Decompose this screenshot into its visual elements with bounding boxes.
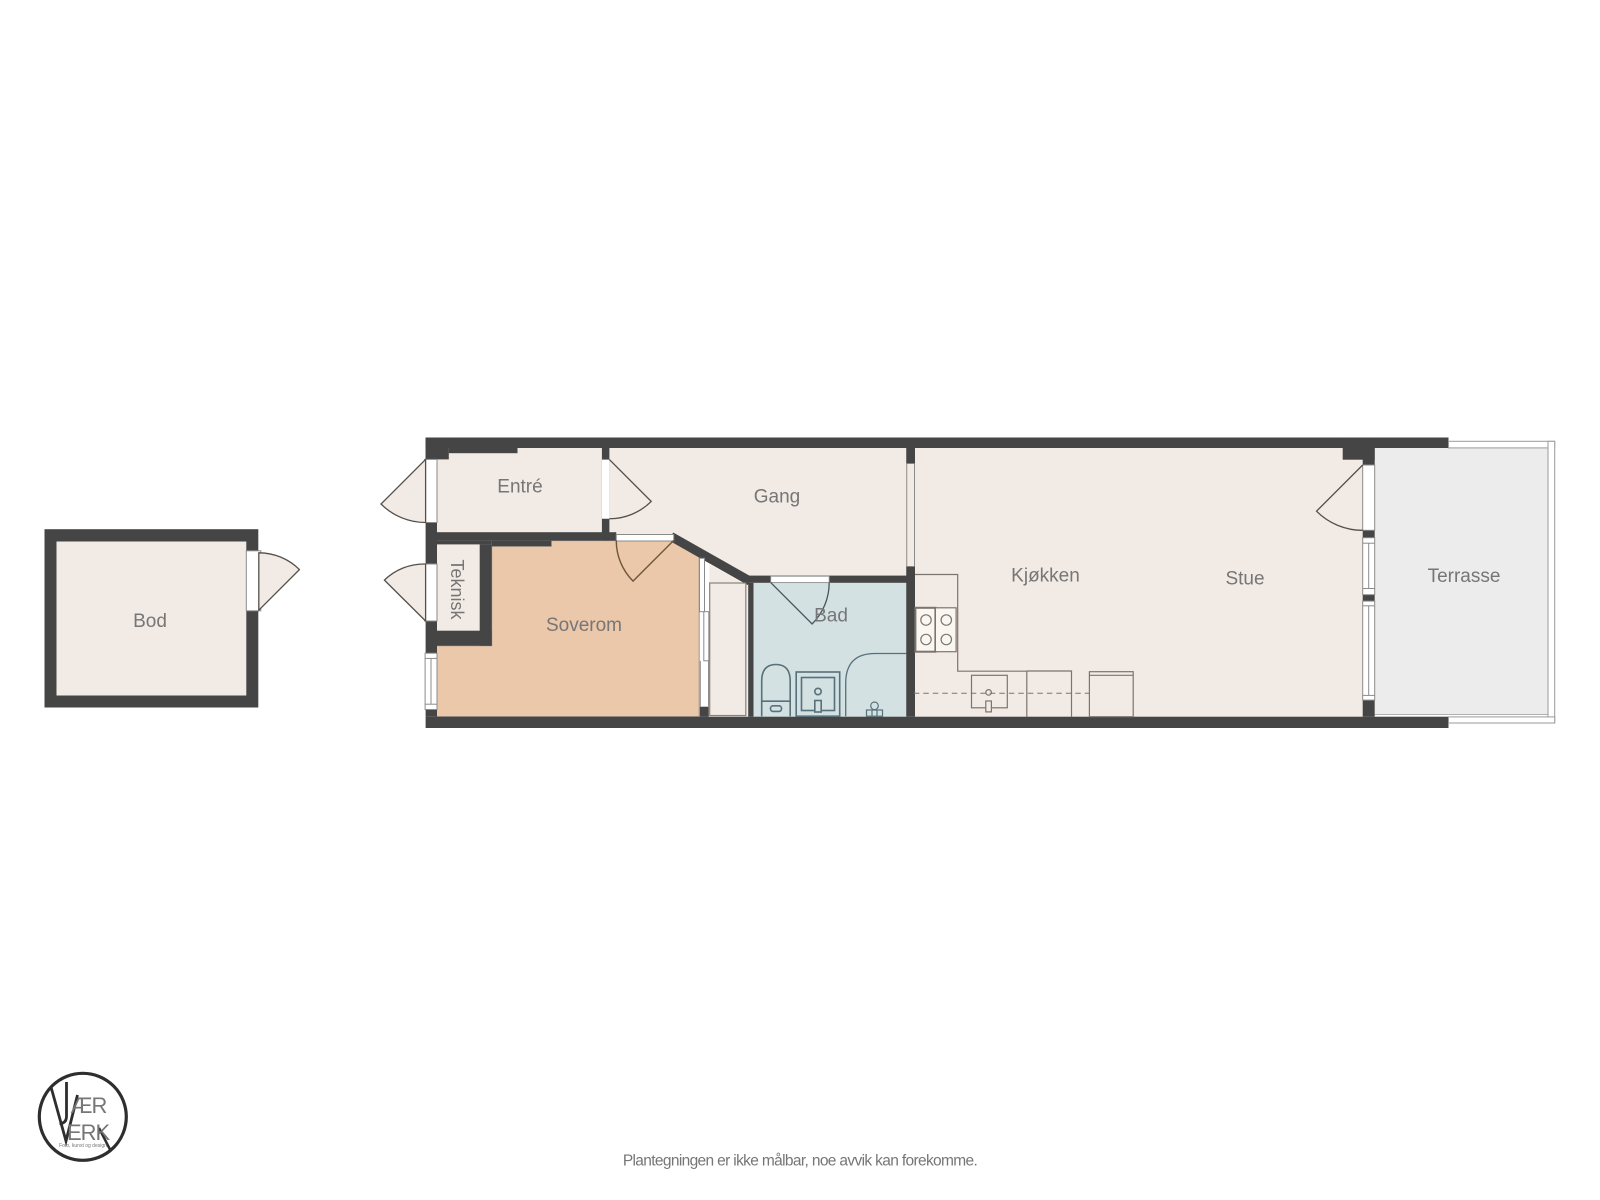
svg-text:Teknisk: Teknisk — [447, 559, 467, 620]
svg-text:Plantegningen er ikke målbar,: Plantegningen er ikke målbar, noe avvik … — [623, 1153, 977, 1170]
svg-text:ÆR: ÆR — [71, 1093, 107, 1118]
svg-text:Bod: Bod — [133, 611, 167, 632]
svg-text:Entré: Entré — [497, 476, 542, 497]
svg-text:Stue: Stue — [1225, 569, 1264, 590]
svg-text:Soverom: Soverom — [546, 615, 622, 636]
svg-text:Gang: Gang — [754, 486, 800, 507]
svg-text:Bad: Bad — [814, 606, 848, 627]
svg-text:Terrasse: Terrasse — [1428, 566, 1501, 587]
svg-text:Foto, kunst og design: Foto, kunst og design — [59, 1143, 107, 1149]
svg-text:Kjøkken: Kjøkken — [1011, 566, 1080, 587]
svg-text:ERK: ERK — [67, 1120, 111, 1145]
